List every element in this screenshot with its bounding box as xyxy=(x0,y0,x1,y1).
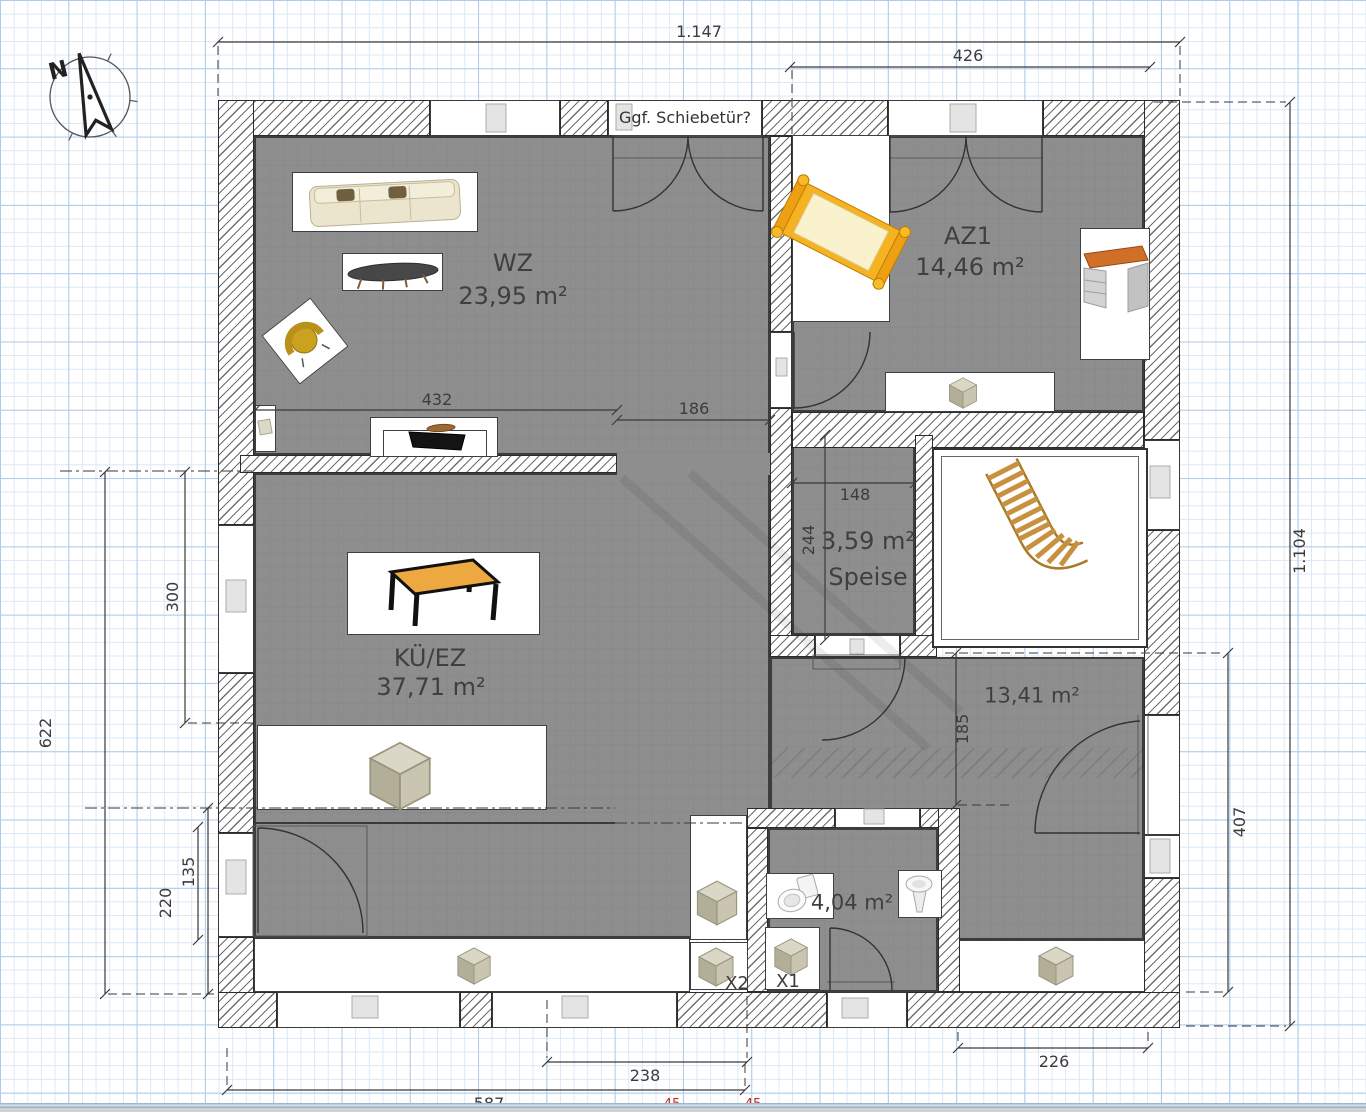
dim-label-left-height[interactable]: 622 xyxy=(38,718,54,749)
dim-label-kue-left[interactable]: 300 xyxy=(165,582,181,613)
room-area-az1[interactable]: 14,46 m² xyxy=(915,255,1024,279)
wall-segment[interactable] xyxy=(762,100,888,136)
window-opening[interactable] xyxy=(430,100,560,136)
wall-segment-interior[interactable] xyxy=(915,435,933,657)
window-opening[interactable] xyxy=(835,808,920,828)
dim-label-right-depth[interactable]: 407 xyxy=(1232,807,1248,838)
wall-segment[interactable] xyxy=(677,992,827,1028)
dim-label-speise-depth[interactable]: 244 xyxy=(801,525,817,556)
box-area-az1[interactable] xyxy=(885,372,1055,412)
wall-segment[interactable] xyxy=(218,673,254,833)
lower-panel-edge xyxy=(0,1108,1366,1112)
window-opening[interactable] xyxy=(277,992,460,1028)
sofa-area[interactable] xyxy=(292,172,478,232)
dim-label-az1-width[interactable]: 426 xyxy=(953,48,984,64)
dim-label-hall-width[interactable]: 186 xyxy=(679,401,710,417)
wall-segment-interior[interactable] xyxy=(792,412,1144,448)
room-label-speise[interactable]: Speise xyxy=(828,565,907,589)
ceiling-slope-hatch xyxy=(772,748,1144,778)
floor-strip-left xyxy=(254,938,690,992)
dim-label-total-width[interactable]: 1.147 xyxy=(676,24,722,40)
compass-icon[interactable]: N xyxy=(40,41,144,150)
room-label-kue-ez[interactable]: KÜ/EZ xyxy=(394,646,466,670)
floor-strip-right xyxy=(958,940,1148,992)
wall-segment[interactable] xyxy=(218,992,277,1028)
coffee-table-area[interactable] xyxy=(342,253,443,291)
dim-line-left-height[interactable] xyxy=(100,467,110,999)
wall-segment[interactable] xyxy=(907,992,1180,1028)
dim-label-bottom-right[interactable]: 226 xyxy=(1039,1054,1070,1070)
window-opening[interactable] xyxy=(218,525,254,673)
door-opening[interactable] xyxy=(815,635,900,657)
small-item-area[interactable] xyxy=(255,405,276,452)
door-opening[interactable] xyxy=(1144,715,1180,835)
marker-x1[interactable]: X1 xyxy=(776,973,800,991)
wall-segment[interactable] xyxy=(460,992,492,1028)
annotation-schiebetuer[interactable]: Ggf. Schiebetür? xyxy=(619,110,751,126)
bed-area[interactable] xyxy=(792,135,890,322)
dim-ext xyxy=(958,1032,1148,1044)
floor-plan-canvas: N xyxy=(0,0,1366,1112)
box-area-tall[interactable] xyxy=(690,815,747,940)
window-opening[interactable] xyxy=(1144,440,1180,530)
wall-segment-bath[interactable] xyxy=(747,808,835,828)
stairwell-inner-frame xyxy=(941,456,1139,640)
window-opening[interactable] xyxy=(492,992,677,1028)
wall-segment-interior[interactable] xyxy=(770,635,815,657)
window-door-opening[interactable] xyxy=(888,100,1043,136)
box-area-kue[interactable] xyxy=(257,725,547,810)
wall-segment-interior[interactable] xyxy=(770,136,792,332)
compass-north-label: N xyxy=(46,56,71,86)
dining-table-area[interactable] xyxy=(347,552,540,635)
window-opening[interactable] xyxy=(1144,835,1180,878)
wall-segment-interior[interactable] xyxy=(240,455,617,473)
room-area-wz[interactable]: 23,95 m² xyxy=(458,284,567,308)
marker-x2[interactable]: X2 xyxy=(725,975,749,993)
dim-label-total-height[interactable]: 1.104 xyxy=(1292,528,1308,574)
wall-segment-interior[interactable] xyxy=(770,408,792,657)
dim-label-speise-width[interactable]: 148 xyxy=(840,487,871,503)
dim-label-zimmer2-depth[interactable]: 185 xyxy=(955,714,971,745)
dim-ext xyxy=(227,1048,745,1086)
sink-area[interactable] xyxy=(898,870,942,918)
dim-label-left-window[interactable]: 135 xyxy=(181,857,197,888)
tv-area[interactable] xyxy=(383,430,487,457)
wall-segment[interactable] xyxy=(560,100,608,136)
window-opening[interactable] xyxy=(827,992,907,1028)
dim-line-entry-left[interactable] xyxy=(203,803,213,999)
dim-label-entry-left[interactable]: 220 xyxy=(158,888,174,919)
room-area-speise[interactable]: 3,59 m² xyxy=(821,529,915,553)
window-opening[interactable] xyxy=(218,833,254,937)
wall-segment[interactable] xyxy=(1144,530,1180,715)
hall-floor-patch[interactable] xyxy=(617,453,770,475)
room-label-wz[interactable]: WZ xyxy=(493,251,533,275)
desk-area[interactable] xyxy=(1080,228,1150,360)
dim-label-bath-bottom[interactable]: 238 xyxy=(630,1068,661,1084)
room-area-zimmer2[interactable]: 13,41 m² xyxy=(984,686,1080,707)
room-area-kue-ez[interactable]: 37,71 m² xyxy=(376,675,485,699)
room-label-az1[interactable]: AZ1 xyxy=(944,224,992,248)
dim-ext xyxy=(218,46,1180,96)
room-area-bad[interactable]: 4,04 m² xyxy=(811,893,893,914)
door-opening[interactable] xyxy=(770,332,792,408)
dim-label-wz-width[interactable]: 432 xyxy=(422,392,453,408)
